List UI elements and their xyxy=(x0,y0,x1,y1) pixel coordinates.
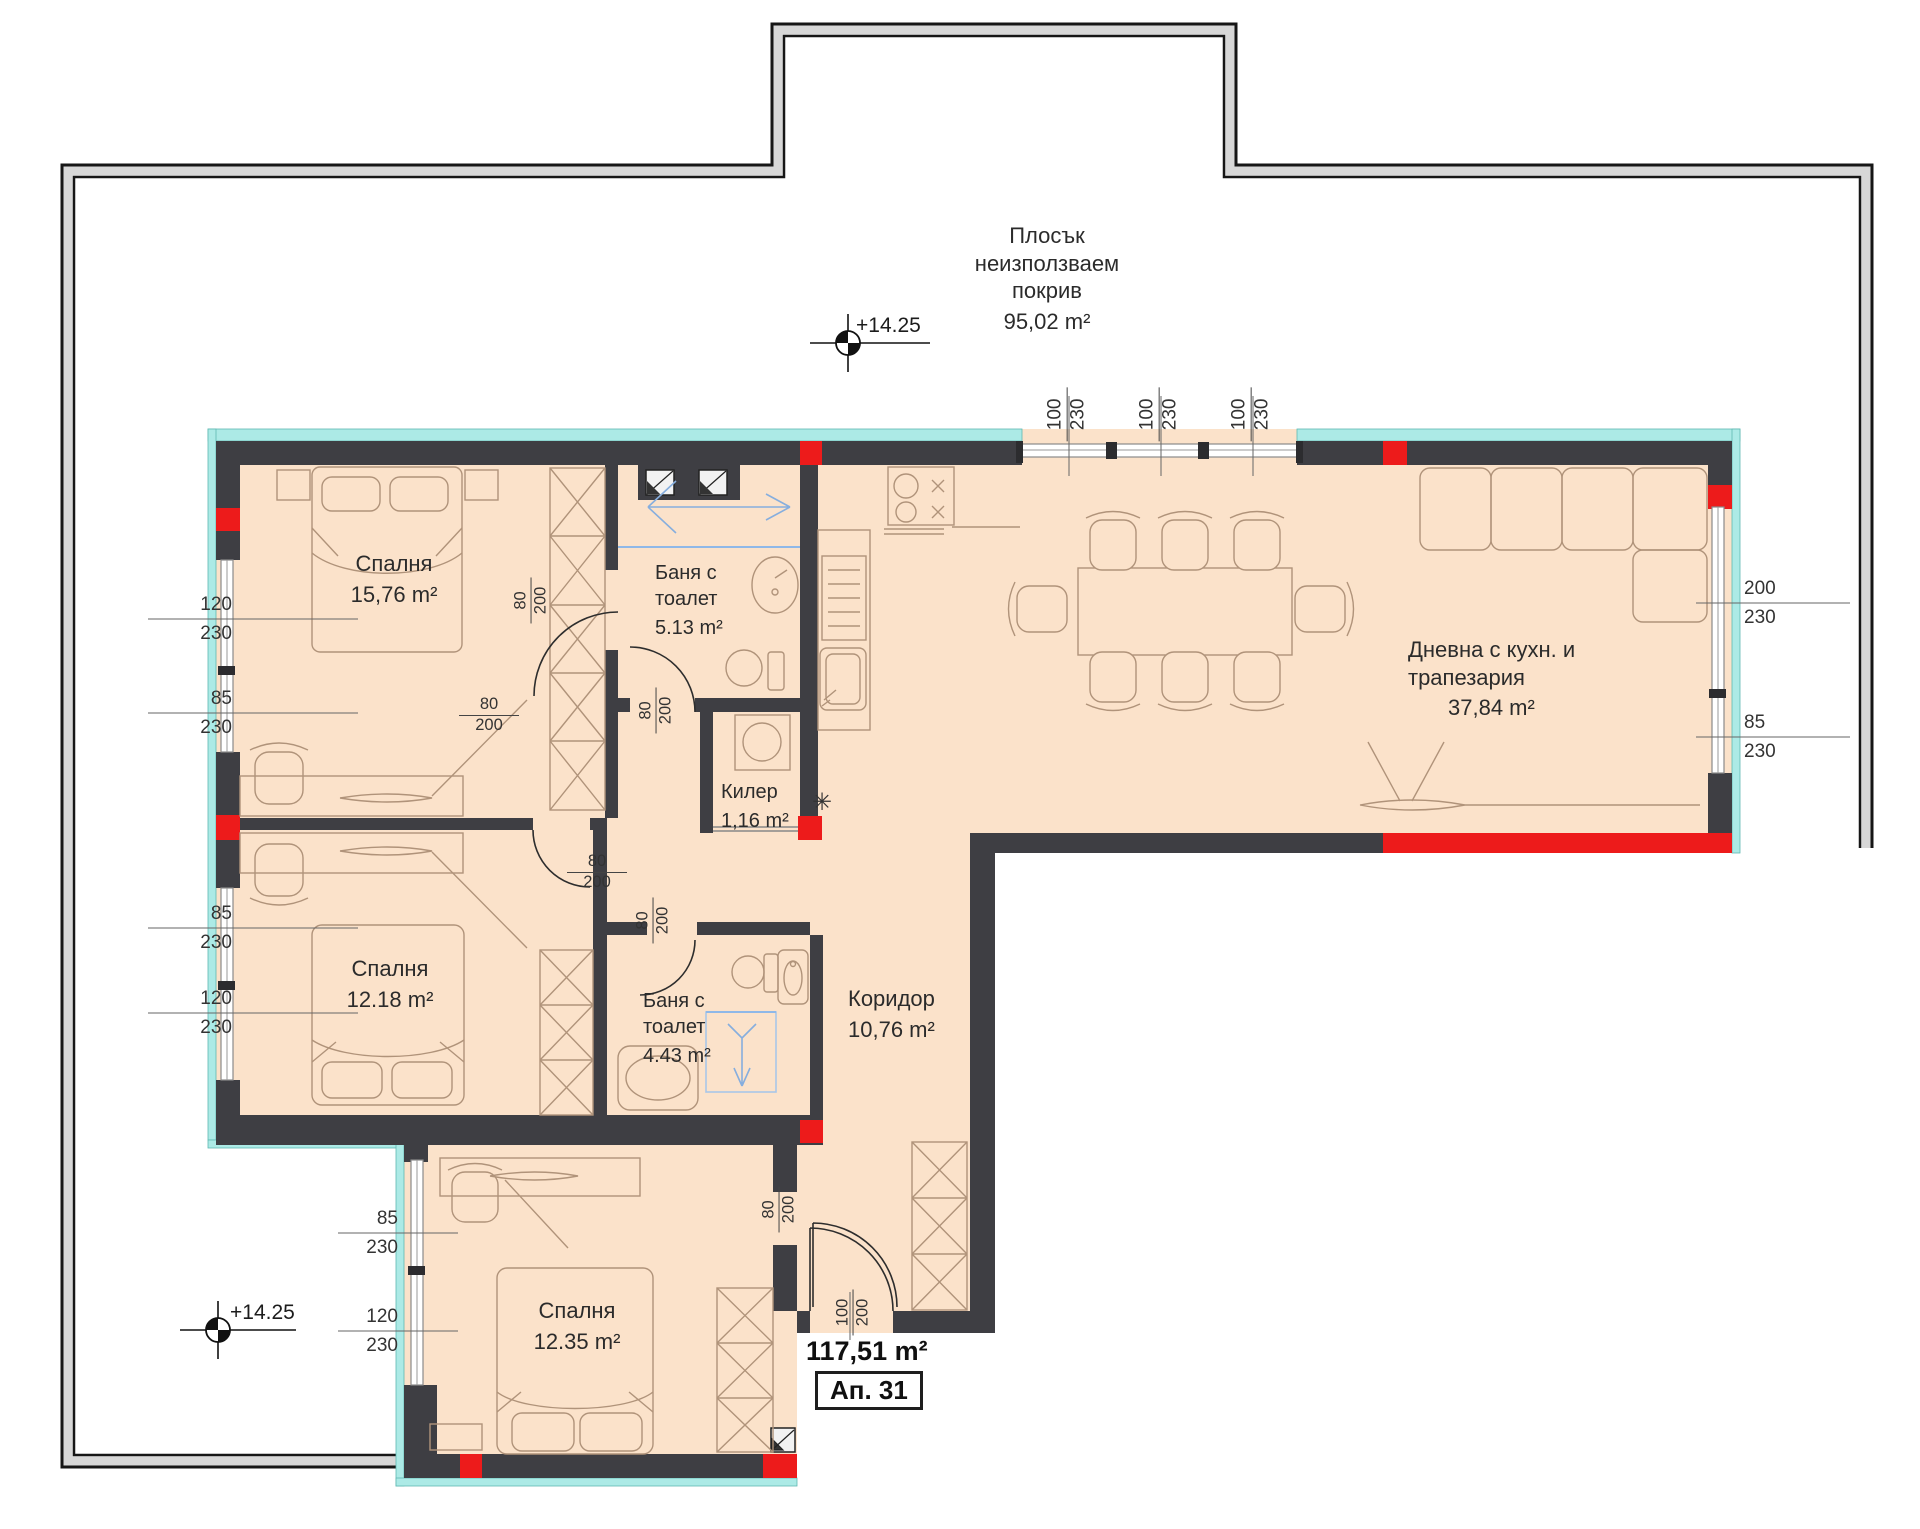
room-label-bath1: Баня с тоалет 5.13 m² xyxy=(655,560,723,641)
room-label-corridor: Коридор 10,76 m² xyxy=(848,985,935,1043)
dim-entrance-door: 100200 xyxy=(834,1289,873,1335)
room-name: Килер xyxy=(721,781,778,803)
dim-left-4: 120230 xyxy=(146,989,232,1037)
dim-door-5: 80200 xyxy=(634,897,673,943)
room-name2: тоалет xyxy=(643,1016,705,1038)
room-name: Коридор xyxy=(848,986,935,1011)
room-name2: трапезария xyxy=(1408,665,1525,690)
room-label-storage: Килер 1,16 m² xyxy=(721,779,789,834)
dim-left-1: 120230 xyxy=(146,595,232,643)
elevation-top: +14.25 xyxy=(856,314,921,338)
room-name: Спалня xyxy=(352,956,429,981)
dim-left-3: 85230 xyxy=(146,904,232,952)
room-area: 12.18 m² xyxy=(310,986,470,1014)
elevation-bottom: +14.25 xyxy=(230,1301,295,1325)
dim-right-1: 200230 xyxy=(1744,579,1830,627)
dim-door-4: 80200 xyxy=(567,852,627,893)
room-label-bedroom2: Спалня 12.18 m² xyxy=(310,955,470,1013)
room-area: 4.43 m² xyxy=(643,1043,711,1069)
room-name2: тоалет xyxy=(655,588,717,610)
dim-door-1: 80200 xyxy=(512,577,551,623)
room-area: 10,76 m² xyxy=(848,1016,935,1044)
room-label-bedroom1: Спалня 15,76 m² xyxy=(314,550,474,608)
room-name: Баня с xyxy=(655,562,717,584)
roof-label: Плосък неизползваем покрив 95,02 m² xyxy=(957,222,1137,335)
vent-symbol: ✳ xyxy=(812,788,832,817)
dim-window-top-1: 100230 xyxy=(1045,387,1090,441)
room-label-bedroom3: Спалня 12.35 m² xyxy=(497,1297,657,1355)
room-label-bath2: Баня с тоалет 4.43 m² xyxy=(643,988,711,1069)
apartment-number: Ап. 31 xyxy=(815,1371,923,1410)
dim-left-2: 85230 xyxy=(146,689,232,737)
room-area: 15,76 m² xyxy=(314,581,474,609)
dim-door-2: 80200 xyxy=(459,695,519,736)
dim-right-2: 85230 xyxy=(1744,713,1830,761)
dim-door-6: 80200 xyxy=(760,1186,799,1232)
dim-door-3: 80200 xyxy=(637,687,676,733)
room-name: Спалня xyxy=(356,551,433,576)
dim-window-top-2: 100230 xyxy=(1137,387,1182,441)
roof-area: 95,02 m² xyxy=(957,308,1137,336)
roof-line3: покрив xyxy=(1012,278,1082,303)
room-area: 1,16 m² xyxy=(721,808,789,834)
room-area: 5.13 m² xyxy=(655,615,723,641)
room-name: Баня с xyxy=(643,990,705,1012)
roof-line1: Плосък xyxy=(1009,223,1085,248)
room-area: 37,84 m² xyxy=(1408,694,1575,722)
room-name: Дневна с кухн. и xyxy=(1408,637,1575,662)
room-area: 12.35 m² xyxy=(497,1328,657,1356)
dim-left-5: 85230 xyxy=(312,1209,398,1257)
dim-left-6: 120230 xyxy=(312,1307,398,1355)
floor-plan-canvas: Плосък неизползваем покрив 95,02 m² +14.… xyxy=(0,0,1920,1529)
total-area: 117,51 m² xyxy=(806,1336,928,1367)
roof-line2: неизползваем xyxy=(975,251,1119,276)
room-label-living: Дневна с кухн. и трапезария 37,84 m² xyxy=(1408,636,1575,722)
dim-window-top-3: 100230 xyxy=(1229,387,1274,441)
room-name: Спалня xyxy=(539,1298,616,1323)
